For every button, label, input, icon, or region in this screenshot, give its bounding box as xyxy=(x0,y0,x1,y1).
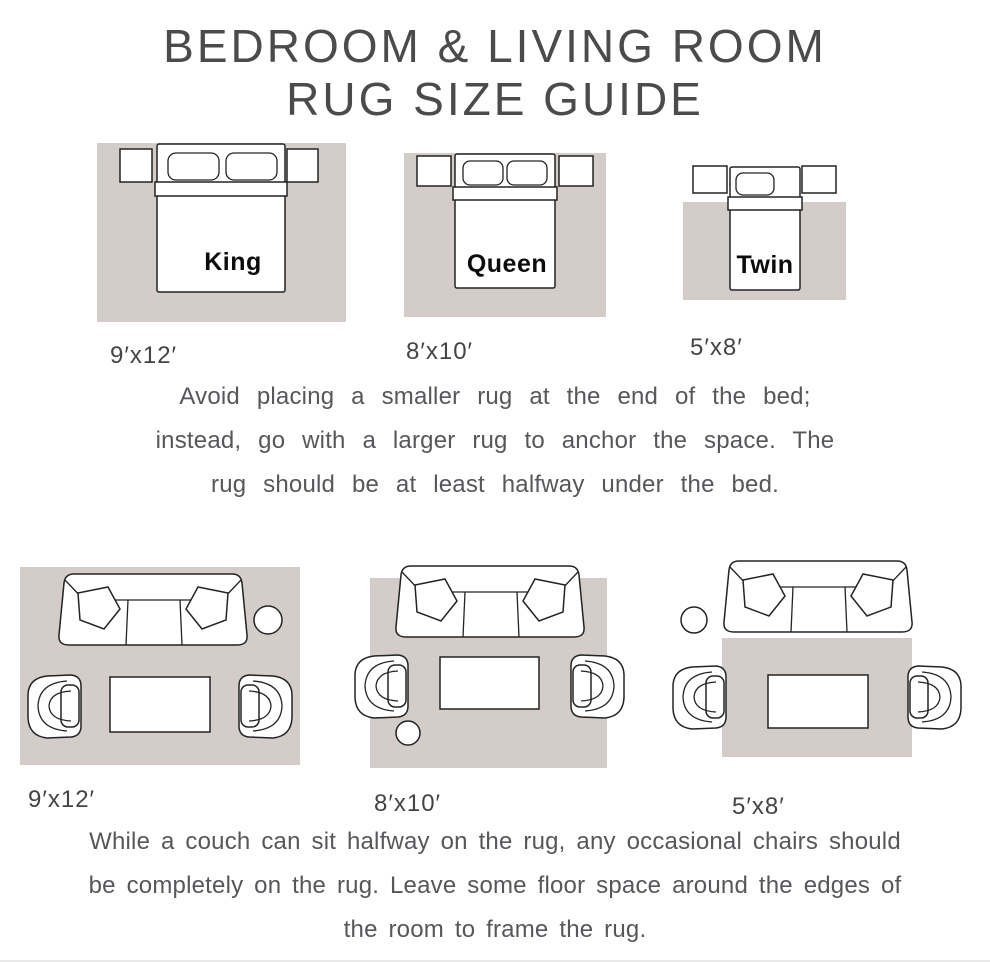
armchair-left xyxy=(28,675,81,738)
nightstand-right xyxy=(802,166,836,193)
side-table xyxy=(254,606,282,634)
bedroom-diagram-king: King xyxy=(95,140,347,323)
sofa xyxy=(396,566,584,637)
armchair-right xyxy=(908,666,961,729)
blanket-fold xyxy=(728,197,802,210)
nightstand-left xyxy=(120,149,152,182)
bedroom-note: Avoid placing a smaller rug at the end o… xyxy=(0,375,990,507)
title-line-2: RUG SIZE GUIDE xyxy=(0,73,990,126)
living-diagram-9x12 xyxy=(18,560,302,768)
bed-size-label: King xyxy=(204,248,262,276)
blanket-fold xyxy=(155,182,287,196)
nightstand-left xyxy=(693,166,727,193)
armchair-left xyxy=(673,666,726,729)
bedroom-diagram-twin: Twin xyxy=(666,160,848,302)
nightstand-right xyxy=(287,149,318,182)
note-line: the room to frame the rug. xyxy=(0,908,990,952)
armchair-right xyxy=(239,675,292,738)
living-diagram-8x10 xyxy=(350,558,628,770)
sofa xyxy=(724,561,912,632)
living-diagram-5x8 xyxy=(660,555,968,760)
armchair-left xyxy=(355,655,408,718)
sofa xyxy=(59,574,247,645)
rug-size-caption: 5′x8′ xyxy=(732,793,785,821)
armchair-right xyxy=(571,655,624,718)
side-table xyxy=(396,721,420,745)
coffee-table xyxy=(110,677,210,732)
nightstand-right xyxy=(559,156,593,186)
living-note: While a couch can sit halfway on the rug… xyxy=(0,820,990,952)
bedroom-diagram-queen: Queen xyxy=(403,150,607,320)
bed-size-label: Queen xyxy=(467,250,547,278)
side-table xyxy=(681,607,707,633)
note-line: rug should be at least halfway under the… xyxy=(0,463,990,507)
rug-size-caption: 9′x12′ xyxy=(28,786,95,814)
nightstand-left xyxy=(417,156,451,186)
coffee-table xyxy=(440,657,539,709)
rug-size-caption: 8′x10′ xyxy=(406,338,473,366)
note-line: be completely on the rug. Leave some flo… xyxy=(0,864,990,908)
rug-size-caption: 8′x10′ xyxy=(374,790,441,818)
bed-size-label: Twin xyxy=(736,251,793,279)
rug-size-caption: 5′x8′ xyxy=(690,334,743,362)
note-line: instead, go with a larger rug to anchor … xyxy=(0,419,990,463)
coffee-table xyxy=(768,675,868,728)
page-title: BEDROOM & LIVING ROOM RUG SIZE GUIDE xyxy=(0,20,990,126)
rug-size-guide-infographic: BEDROOM & LIVING ROOM RUG SIZE GUIDE Kin… xyxy=(0,0,990,962)
blanket-fold xyxy=(453,187,557,200)
note-line: While a couch can sit halfway on the rug… xyxy=(0,820,990,864)
title-line-1: BEDROOM & LIVING ROOM xyxy=(0,20,990,73)
note-line: Avoid placing a smaller rug at the end o… xyxy=(0,375,990,419)
rug-size-caption: 9′x12′ xyxy=(110,342,177,370)
